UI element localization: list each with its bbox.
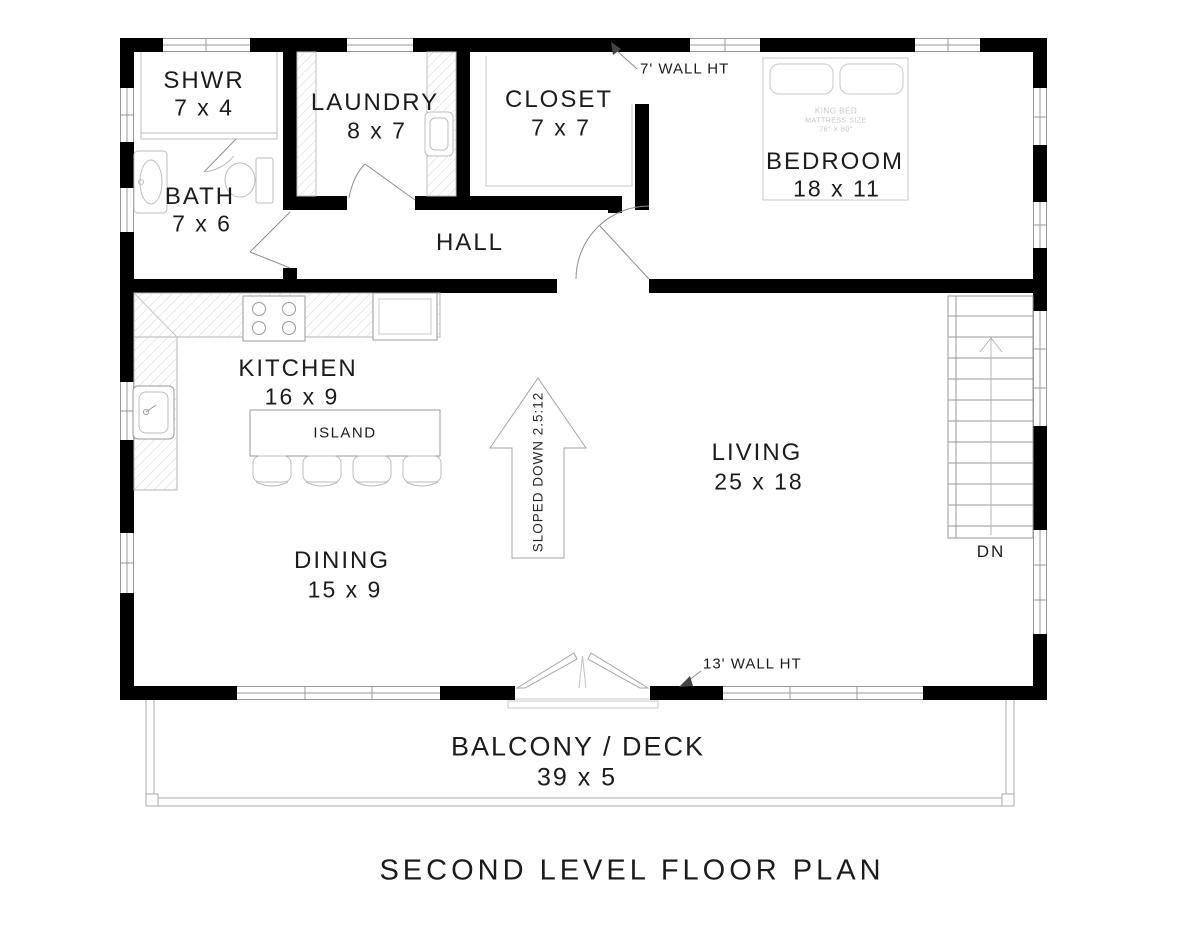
bed-note-line2: MATTRESS SIZE (805, 118, 867, 125)
room-label-kitchen: KITCHEN (238, 355, 357, 383)
window-top-laundry (347, 38, 413, 52)
cooktop (243, 296, 305, 341)
window-left-bath (120, 188, 134, 232)
bath-sink (134, 151, 167, 213)
window-bottom-living (723, 686, 923, 700)
balcony-label: BALCONY / DECK (451, 732, 705, 763)
wall-height-leaders (611, 42, 701, 687)
lower-wall-height-note: 13' WALL HT (703, 656, 802, 673)
room-dims-dining: 15 x 9 (308, 577, 383, 604)
window-left-dining (120, 533, 134, 593)
balcony-dims: 39 x 5 (537, 764, 617, 793)
upper-wall-height-note: 7' WALL HT (640, 61, 729, 78)
room-dims-kitchen: 16 x 9 (265, 384, 340, 411)
page-title: SECOND LEVEL FLOOR PLAN (379, 855, 884, 888)
washer (425, 112, 453, 156)
stairs (948, 296, 1033, 538)
window-bottom-dining (237, 686, 440, 700)
window-right-stairs-upper (1033, 311, 1047, 426)
window-top-bedroom-right (915, 38, 980, 52)
room-label-living: LIVING (712, 439, 803, 467)
room-dims-shwr: 7 x 4 (174, 95, 234, 122)
room-dims-living: 25 x 18 (714, 469, 803, 496)
window-left-shower (120, 88, 134, 142)
room-label-closet: CLOSET (505, 86, 613, 114)
floor-plan-page: SHWR 7 x 4 BATH 7 x 6 LAUNDRY 8 x 7 CLOS… (0, 0, 1200, 926)
room-label-bath: BATH (165, 183, 235, 211)
room-label-bedroom: BEDROOM (766, 148, 904, 176)
island-label: ISLAND (313, 425, 376, 442)
kitchen-sink (133, 386, 174, 439)
refrigerator (373, 293, 437, 340)
bed-note-line1: KING BED (815, 107, 857, 116)
island-stools (253, 456, 441, 486)
balcony-french-door (508, 653, 658, 708)
room-label-laundry: LAUNDRY (311, 89, 439, 117)
window-right-bedroom-lower (1033, 202, 1047, 248)
room-dims-bath: 7 x 6 (172, 211, 232, 238)
room-dims-laundry: 8 x 7 (347, 118, 407, 145)
slope-arrow-label: SLOPED DOWN 2.5:12 (531, 392, 546, 553)
room-label-hall: HALL (436, 229, 504, 257)
laundry-door (349, 164, 415, 200)
room-label-dining: DINING (294, 547, 390, 575)
window-right-stairs-lower (1033, 530, 1047, 634)
bed-note-line3: 76" X 80" (819, 127, 853, 134)
room-dims-closet: 7 x 7 (531, 115, 591, 142)
stairs-down-label: DN (977, 542, 1006, 562)
bath-door (250, 212, 290, 268)
window-top-shower (163, 38, 250, 52)
window-right-bedroom-upper (1033, 88, 1047, 145)
window-top-bedroom-left (690, 38, 760, 52)
hall-bedroom-door (576, 206, 649, 279)
window-left-kitchen (120, 382, 134, 440)
room-label-shwr: SHWR (163, 67, 244, 95)
room-dims-bedroom: 18 x 11 (793, 176, 881, 203)
